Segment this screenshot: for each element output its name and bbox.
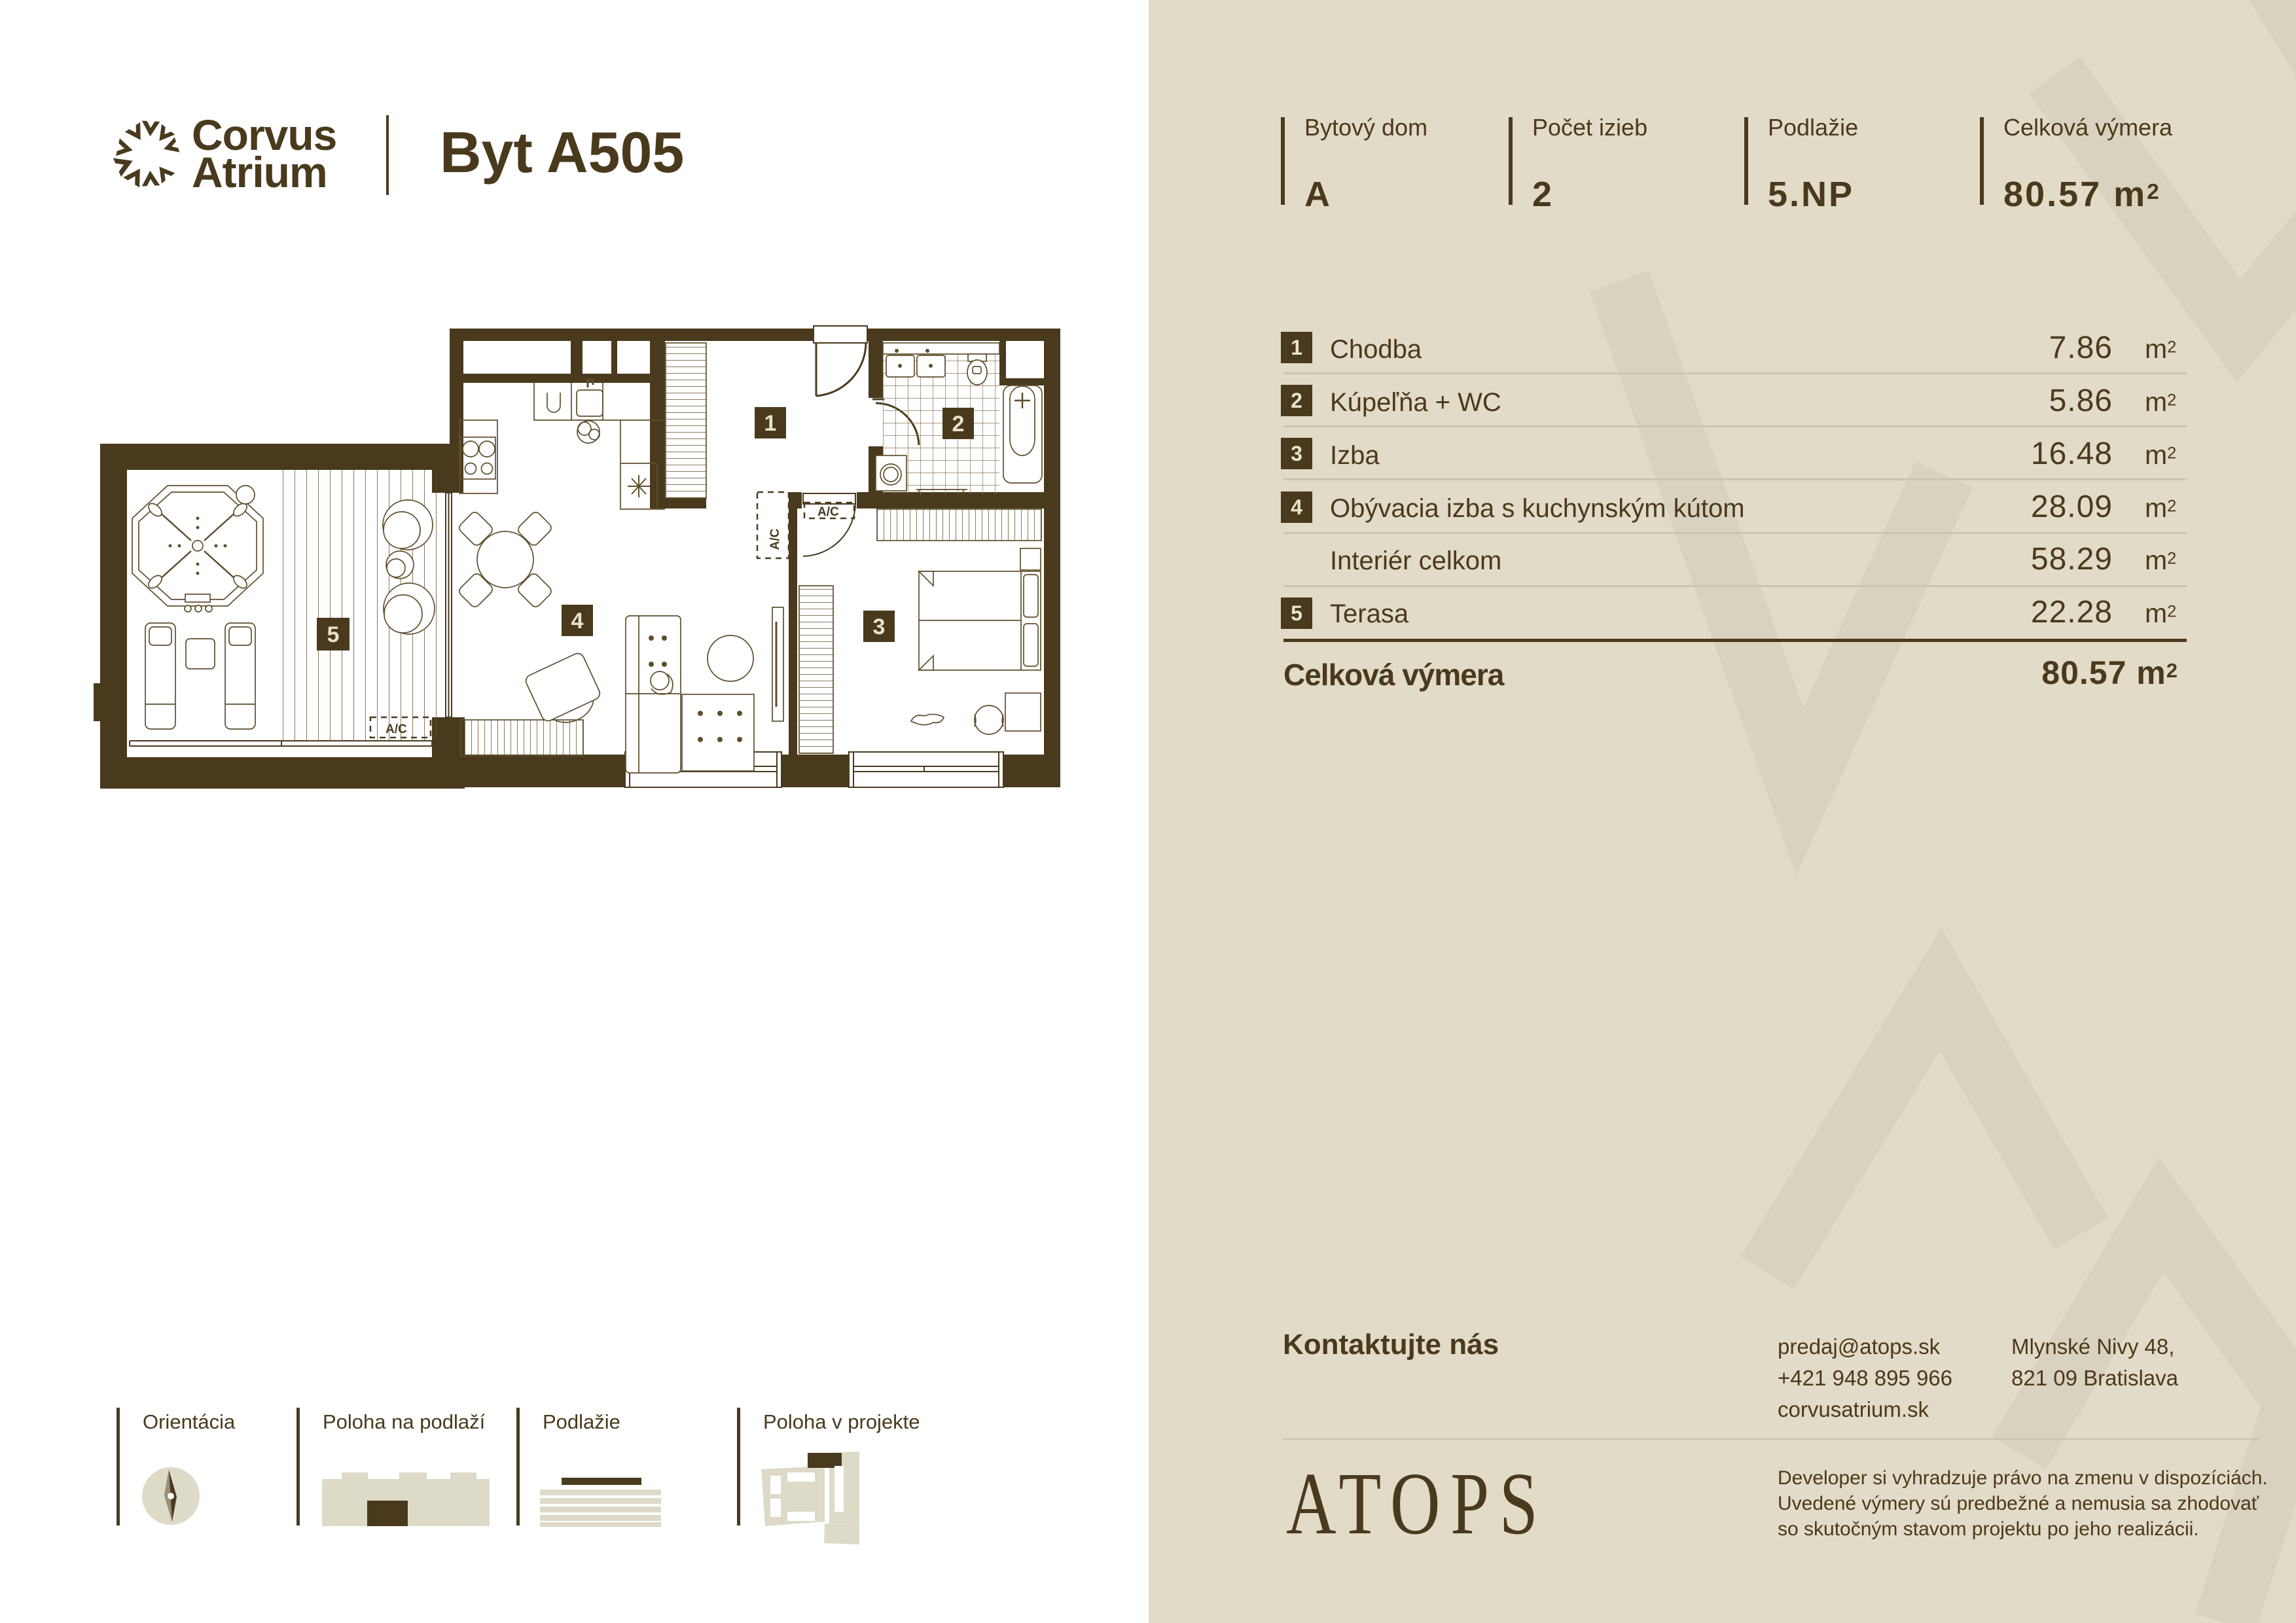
svg-text:5: 5 [327, 622, 340, 647]
svg-text:1: 1 [764, 411, 777, 436]
svg-text:A/C: A/C [817, 505, 839, 519]
svg-text:4: 4 [571, 609, 584, 633]
svg-text:A/C: A/C [768, 528, 782, 550]
svg-text:3: 3 [873, 615, 886, 639]
svg-text:2: 2 [952, 412, 965, 437]
